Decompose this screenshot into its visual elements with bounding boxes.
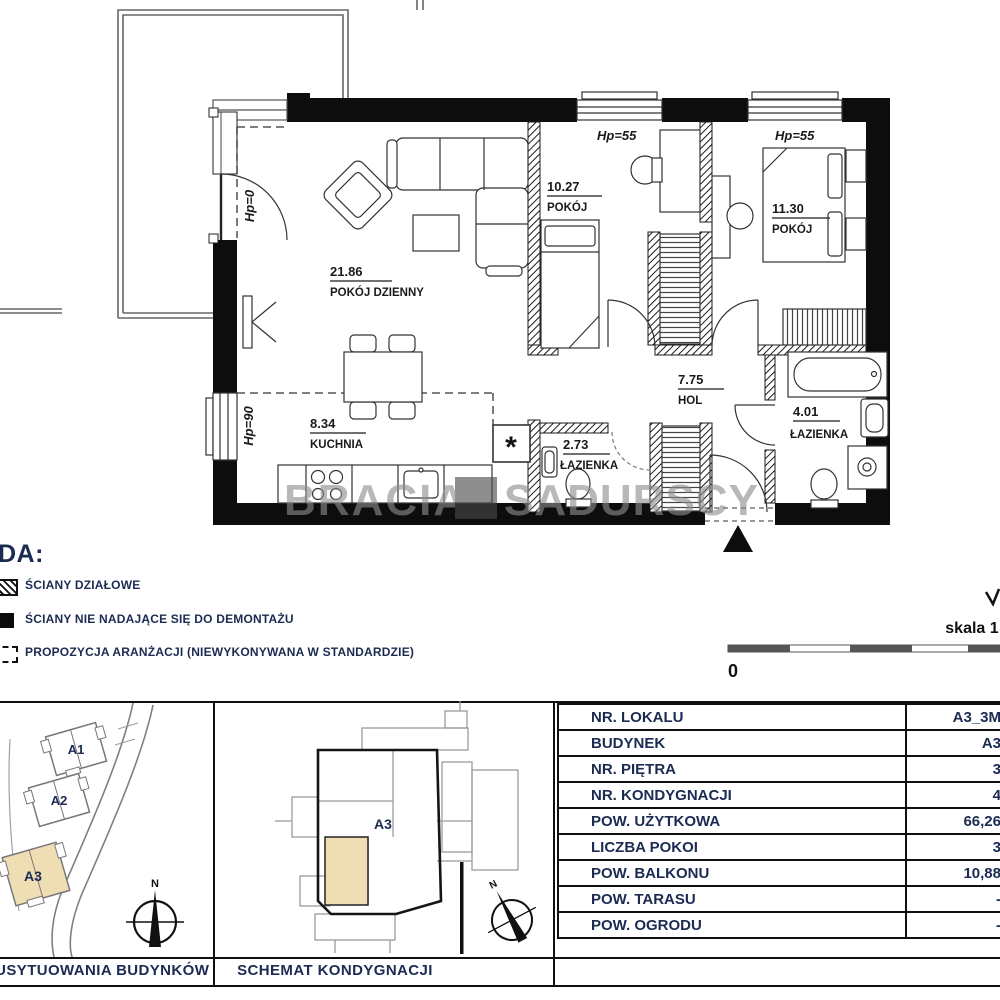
- coffee-table: [413, 215, 459, 251]
- row-label: POW. BALKONU: [559, 861, 907, 885]
- row-value: 10,88: [907, 861, 1000, 885]
- compass-n-label: N: [151, 878, 159, 890]
- scale-bar: skala 1: 0: [728, 589, 1000, 681]
- table-row: NR. PIĘTRA 3: [557, 755, 1000, 783]
- hp-label-window1: Hp=55: [597, 128, 637, 143]
- svg-text:10.27: 10.27: [547, 179, 580, 194]
- wardrobe-bedroom: [783, 309, 866, 345]
- site-building-a2: A2: [23, 772, 96, 828]
- apartment-data-table: NR. LOKALU A3_3M BUDYNEK A3 NR. PIĘTRA 3…: [557, 703, 1000, 939]
- row-label: NR. LOKALU: [559, 705, 907, 729]
- row-value: -: [907, 913, 1000, 937]
- svg-text:POKÓJ DZIENNY: POKÓJ DZIENNY: [330, 286, 424, 299]
- row-label: NR. KONDYGNACJI: [559, 783, 907, 807]
- site-plan-caption: SCHEMAT USYTUOWANIA BUDYNKÓW: [0, 962, 212, 979]
- floorplan-drawing: *: [0, 0, 1000, 700]
- row-label: POW. OGRODU: [559, 913, 907, 937]
- room-label-bath-small: 2.73 ŁAZIENKA: [560, 437, 618, 472]
- solid-wall-icon: [0, 613, 14, 628]
- bed-single: [541, 220, 599, 348]
- row-label: POW. TARASU: [559, 887, 907, 911]
- dashed-outline-icon: [0, 646, 18, 663]
- schematic-highlighted-unit: [325, 837, 368, 905]
- row-value: A3_3M: [907, 705, 1000, 729]
- table-row: POW. BALKONU 10,88: [557, 859, 1000, 887]
- watermark-right: SADURSCY: [504, 476, 759, 525]
- floor-schematic-caption: SCHEMAT KONDYGNACJI: [215, 962, 455, 979]
- scale-zero: 0: [728, 661, 738, 681]
- table-row: NR. KONDYGNACJI 4: [557, 781, 1000, 809]
- table-row: LICZBA POKOI 3: [557, 833, 1000, 861]
- legend-item-label: PROPOZYCJA ARANŻACJI (NIEWYKONYWANA W ST…: [25, 645, 414, 659]
- room-label-kitchen: 8.34 KUCHNIA: [310, 416, 366, 451]
- room-label-bath-big: 4.01 ŁAZIENKA: [790, 404, 848, 441]
- watermark-left: BRACIA: [284, 476, 467, 525]
- legend-item-label: ŚCIANY DZIAŁOWE: [25, 578, 140, 592]
- hatched-wall-icon: [0, 579, 18, 596]
- floor-schematic: A3 N: [215, 701, 555, 957]
- svg-text:2.73: 2.73: [563, 437, 588, 452]
- svg-text:ŁAZIENKA: ŁAZIENKA: [790, 429, 848, 441]
- caption-band-top: [0, 957, 1000, 959]
- scale-label: skala 1:: [945, 620, 1000, 637]
- svg-text:21.86: 21.86: [330, 264, 363, 279]
- sofa: [387, 138, 528, 276]
- schematic-black-bar: [460, 862, 464, 954]
- desk-room1: [631, 130, 700, 212]
- site-building-a3-highlighted: A3: [0, 841, 77, 913]
- legend-title: DA:: [0, 540, 44, 569]
- hp-label-balcony-door: Hp=0: [242, 189, 257, 222]
- svg-text:POKÓJ: POKÓJ: [772, 223, 812, 236]
- svg-text:KUCHNIA: KUCHNIA: [310, 439, 363, 451]
- room-label-room1: 10.27 POKÓJ: [547, 179, 602, 214]
- room-label-hall: 7.75 HOL: [678, 372, 724, 407]
- building-a3-label: A3: [24, 868, 42, 884]
- closet-hall: [660, 234, 700, 344]
- table-row: NR. LOKALU A3_3M: [557, 703, 1000, 731]
- washer-niche: *: [493, 425, 530, 464]
- site-compass: N: [126, 878, 184, 947]
- table-row: POW. TARASU -: [557, 885, 1000, 913]
- floorplan-sheet: { "watermark": { "left": "BRACIA", "righ…: [0, 0, 1000, 1000]
- row-label: BUDYNEK: [559, 731, 907, 755]
- hp-label-window2: Hp=55: [775, 128, 815, 143]
- svg-text:POKÓJ: POKÓJ: [547, 201, 587, 214]
- svg-text:7.75: 7.75: [678, 372, 703, 387]
- row-value: -: [907, 887, 1000, 911]
- compass-n-label: N: [488, 879, 500, 892]
- schematic-compass: N: [467, 868, 547, 953]
- svg-text:4.01: 4.01: [793, 404, 818, 419]
- row-label: POW. UŻYTKOWA: [559, 809, 907, 833]
- desk-room2: [712, 176, 753, 258]
- schematic-unit-label: A3: [374, 816, 392, 832]
- caption-band-bottom: [0, 985, 1000, 987]
- watermark-logo: [455, 477, 497, 519]
- dining-set: [344, 335, 422, 419]
- table-row: POW. UŻYTKOWA 66,26: [557, 807, 1000, 835]
- hp-label-kitchen-window: Hp=90: [241, 406, 256, 446]
- svg-text:11.30: 11.30: [772, 201, 804, 216]
- legend-item-label: ŚCIANY NIE NADAJĄCE SIĘ DO DEMONTAŻU: [25, 612, 294, 626]
- building-a2-label: A2: [51, 793, 68, 808]
- entrance-arrow: [723, 525, 753, 552]
- table-row: POW. OGRODU -: [557, 911, 1000, 939]
- row-value: 3: [907, 757, 1000, 781]
- svg-text:ŁAZIENKA: ŁAZIENKA: [560, 460, 618, 472]
- building-a1-label: A1: [68, 742, 85, 757]
- cut-glyph: [986, 589, 999, 604]
- tv-unit: [243, 296, 276, 348]
- site-plan: A1 A2 A3 N: [0, 701, 215, 957]
- armchair: [321, 158, 395, 232]
- svg-text:8.34: 8.34: [310, 416, 336, 431]
- table-row: BUDYNEK A3: [557, 729, 1000, 757]
- row-value: 4: [907, 783, 1000, 807]
- asterisk-mark: *: [505, 431, 517, 464]
- room-label-living: 21.86 POKÓJ DZIENNY: [330, 264, 424, 299]
- svg-text:HOL: HOL: [678, 395, 702, 407]
- site-building-a1: A1: [40, 721, 114, 781]
- row-value: 3: [907, 835, 1000, 859]
- row-value: A3: [907, 731, 1000, 755]
- watermark: BRACIA SADURSCY: [284, 476, 759, 525]
- row-label: LICZBA POKOI: [559, 835, 907, 859]
- row-value: 66,26: [907, 809, 1000, 833]
- row-label: NR. PIĘTRA: [559, 757, 907, 781]
